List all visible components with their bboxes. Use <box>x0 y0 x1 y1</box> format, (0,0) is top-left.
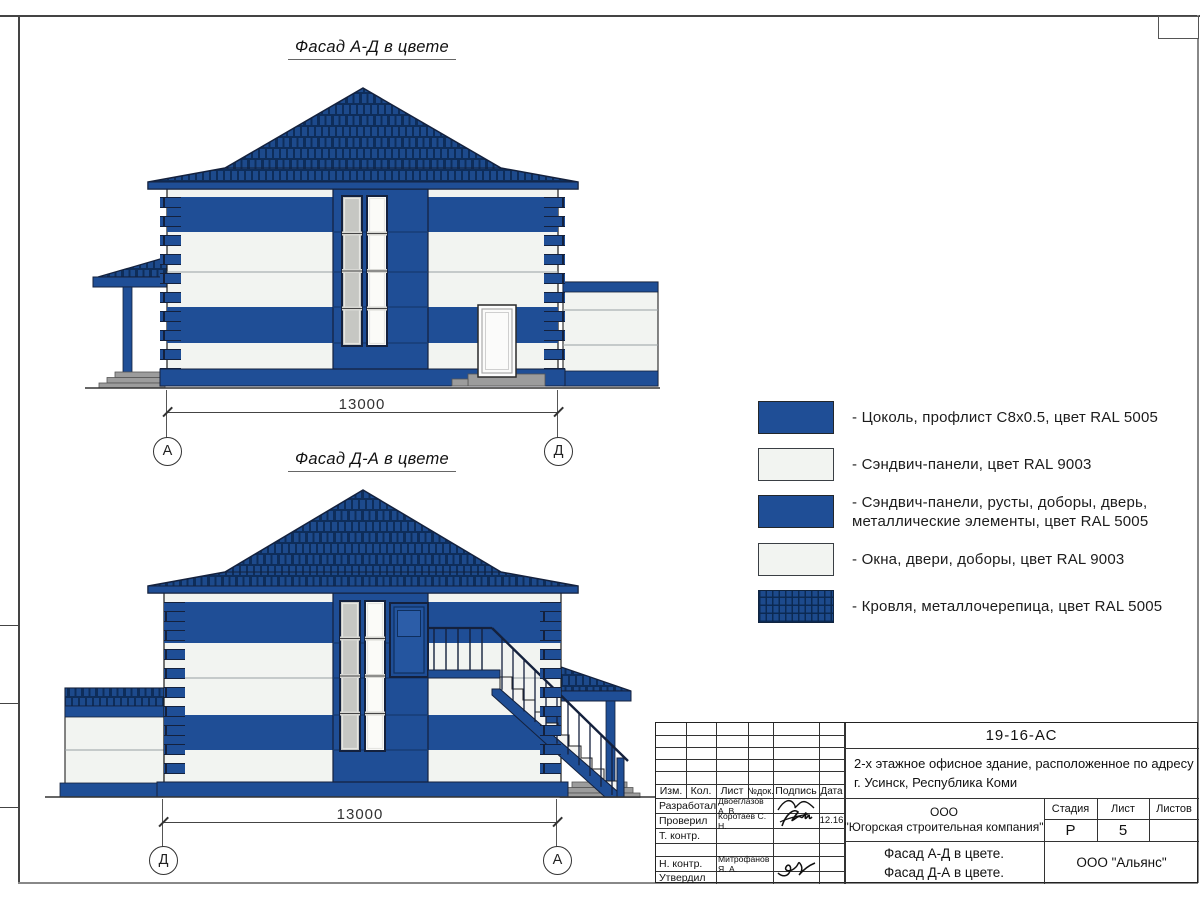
legend-label-windows: - Окна, двери, доборы, цвет RAL 9003 <box>852 551 1197 570</box>
axis-marker-d: Д <box>149 846 178 875</box>
legend-label-plinth: - Цоколь, профлист С8х0.5, цвет RAL 5005 <box>852 409 1197 428</box>
tb-sheet-label: Лист <box>1097 798 1149 819</box>
tb-date-checked: 12.16 <box>819 813 844 828</box>
annex-left <box>60 688 164 797</box>
tb-org-line2: "Югорская строительная компания" <box>844 820 1043 835</box>
signature-developed <box>774 796 820 830</box>
porch-canopy-left <box>93 257 167 374</box>
tb-company: ООО "Альянс" <box>1044 841 1199 884</box>
tb-name-checked: Коротаев С. Н. <box>718 813 773 828</box>
upper-door <box>390 603 428 677</box>
tb-sheet-value: 5 <box>1097 819 1149 841</box>
dimension-value: 13000 <box>280 806 440 823</box>
window-right <box>367 196 387 346</box>
legend-label-roof: - Кровля, металлочерепица, цвет RAL 5005 <box>852 598 1197 617</box>
frame-top-line <box>0 15 1200 17</box>
window-left <box>340 601 360 751</box>
plinth <box>157 782 568 797</box>
window-right <box>365 601 385 751</box>
tb-content: Фасад А-Д в цвете. Фасад Д-А в цвете. <box>844 841 1044 884</box>
tb-col-kol: Кол. <box>686 784 716 798</box>
frame-corner-box <box>1158 16 1199 39</box>
legend-swatch-sandwich <box>758 448 834 481</box>
tb-role-ncontrol: Н. контр. <box>659 856 716 871</box>
quoins-right <box>544 197 565 369</box>
axis-marker-a: А <box>543 846 572 875</box>
legend-swatch-sandwich-blue <box>758 495 834 528</box>
facade-ad-drawing <box>80 83 670 393</box>
annex-right <box>563 282 658 386</box>
entrance-steps-left <box>99 372 165 388</box>
window-left <box>342 196 362 346</box>
tb-role-approved: Утвердил <box>659 871 716 884</box>
facade-ad-title: Фасад А-Д в цвете <box>288 38 456 60</box>
tb-role-developed: Разработал <box>659 798 716 813</box>
drawing-sheet: Фасад А-Д в цвете <box>0 0 1200 900</box>
tb-stage-label: Стадия <box>1044 798 1097 819</box>
tb-org: ООО "Югорская строительная компания" <box>844 798 1044 841</box>
axis-marker-d: Д <box>544 437 573 466</box>
tb-sheets-value <box>1149 819 1199 841</box>
frame-tick-1 <box>0 625 18 626</box>
legend-swatch-plinth <box>758 401 834 434</box>
legend-swatch-roof <box>758 590 834 623</box>
quoins-left <box>164 602 185 782</box>
quoins-left <box>160 197 181 369</box>
tb-role-tcontrol: Т. контр. <box>659 828 716 843</box>
tb-stage-value: Р <box>1044 819 1097 841</box>
tb-name-ncontrol: Митрофанов Я. А. <box>718 856 773 871</box>
tb-org-line1: ООО <box>930 805 958 820</box>
title-block: Изм. Кол. Лист №док. Подпись Дата Разраб… <box>655 722 1198 883</box>
frame-tick-3 <box>0 807 18 808</box>
tb-sheets-label: Листов <box>1149 798 1199 819</box>
legend-swatch-windows <box>758 543 834 576</box>
frame-left-line <box>18 15 20 883</box>
dimension-value: 13000 <box>282 396 442 413</box>
legend-label-sandwich-blue: - Сэндвич-панели, русты, доборы, дверь, … <box>852 494 1197 531</box>
quoins-right <box>540 602 561 782</box>
entrance-door <box>478 305 516 377</box>
tb-role-checked: Проверил <box>659 813 716 828</box>
frame-tick-2 <box>0 703 18 704</box>
tb-content-line1: Фасад А-Д в цвете. <box>884 844 1004 863</box>
facade-da-drawing <box>40 478 660 808</box>
axis-marker-a: А <box>153 437 182 466</box>
roof <box>148 88 578 189</box>
roof <box>148 490 578 593</box>
tb-col-data: Дата <box>819 784 844 798</box>
tb-project-desc: 2-х этажное офисное здание, расположенно… <box>854 750 1194 796</box>
tb-col-izm: Изм. <box>656 784 686 798</box>
facade-da-title: Фасад Д-А в цвете <box>288 450 456 472</box>
legend-label-sandwich: - Сэндвич-панели, цвет RAL 9003 <box>852 456 1197 475</box>
tb-content-line2: Фасад Д-А в цвете. <box>884 863 1004 882</box>
signature-ncontrol <box>774 857 820 879</box>
tb-doc-number: 19-16-АС <box>844 723 1199 748</box>
